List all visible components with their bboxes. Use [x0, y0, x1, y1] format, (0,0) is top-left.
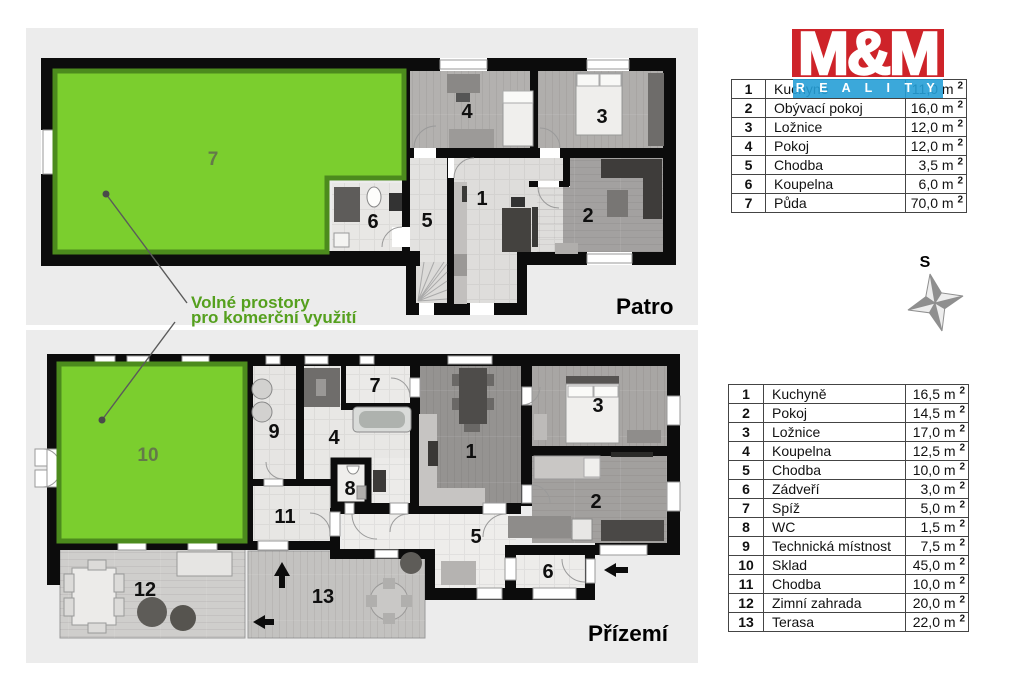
svg-text:12: 12 — [134, 579, 156, 601]
svg-text:7: 7 — [208, 149, 219, 170]
svg-text:4: 4 — [328, 427, 340, 449]
svg-text:1: 1 — [465, 441, 476, 463]
svg-text:3: 3 — [592, 395, 603, 417]
svg-text:7: 7 — [369, 375, 380, 397]
svg-text:5: 5 — [421, 210, 432, 232]
svg-text:5: 5 — [470, 526, 481, 548]
svg-text:10: 10 — [137, 445, 158, 466]
svg-text:8: 8 — [344, 478, 355, 500]
svg-text:2: 2 — [590, 491, 601, 513]
svg-text:13: 13 — [312, 586, 334, 608]
svg-text:1: 1 — [476, 188, 487, 210]
svg-text:S: S — [920, 254, 931, 271]
svg-text:3: 3 — [596, 106, 607, 128]
svg-text:9: 9 — [268, 421, 279, 443]
svg-text:2: 2 — [582, 205, 593, 227]
svg-text:6: 6 — [542, 561, 553, 583]
svg-text:6: 6 — [367, 211, 378, 233]
svg-text:4: 4 — [461, 101, 473, 123]
svg-text:11: 11 — [274, 506, 295, 528]
